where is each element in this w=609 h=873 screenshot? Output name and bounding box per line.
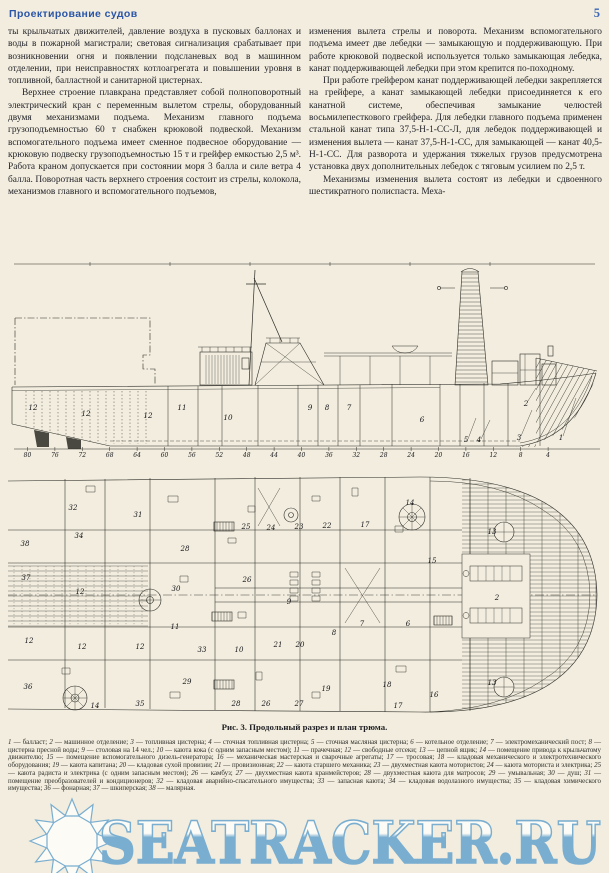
ship-plan-drawing: 3231343828252423221714151337123026911876…: [0, 468, 609, 718]
svg-text:38: 38: [21, 540, 30, 548]
svg-text:16: 16: [430, 691, 439, 699]
svg-text:12: 12: [78, 643, 87, 651]
profile-linework: [12, 262, 609, 453]
svg-text:19: 19: [322, 685, 331, 693]
svg-text:1: 1: [559, 433, 564, 442]
svg-text:72: 72: [78, 452, 86, 458]
watermark: SEATRACKER.RU: [0, 797, 609, 873]
svg-text:80: 80: [24, 452, 32, 458]
page-header: Проектирование судов 5: [9, 6, 600, 21]
svg-text:12: 12: [76, 588, 85, 596]
svg-text:9: 9: [287, 598, 292, 606]
svg-text:2: 2: [523, 399, 529, 408]
svg-text:26: 26: [261, 700, 271, 708]
svg-text:8: 8: [325, 403, 330, 412]
figure-legend: 1 — балласт; 2 — машинное отделение; 3 —…: [8, 739, 601, 793]
svg-text:25: 25: [241, 523, 251, 531]
plan-linework: [8, 476, 602, 714]
svg-text:28: 28: [180, 545, 190, 553]
svg-text:4: 4: [476, 435, 482, 444]
svg-text:6: 6: [406, 620, 411, 628]
svg-text:5: 5: [464, 435, 469, 444]
svg-text:17: 17: [361, 521, 370, 529]
svg-text:40: 40: [297, 452, 306, 458]
svg-text:22: 22: [322, 522, 332, 530]
svg-text:12: 12: [81, 409, 91, 418]
body-paragraph: изменения вылета стрелы и поворота. Меха…: [309, 26, 602, 75]
svg-text:12: 12: [143, 411, 153, 420]
ship-profile-drawing: 1212121110987654321 80767268646056524844…: [0, 258, 609, 458]
body-text: ты крыльчатых движителей, давление возду…: [8, 26, 602, 198]
svg-text:8: 8: [519, 452, 523, 458]
figure-caption: Рис. 3. Продольный разрез и план трюма.: [0, 722, 609, 732]
body-paragraph: При работе грейфером канат поддерживающе…: [309, 75, 602, 173]
svg-text:4: 4: [545, 452, 550, 458]
svg-text:28: 28: [231, 700, 241, 708]
svg-text:20: 20: [295, 641, 305, 649]
svg-text:76: 76: [51, 452, 59, 458]
svg-text:27: 27: [294, 700, 304, 708]
svg-text:10: 10: [235, 646, 244, 654]
svg-text:7: 7: [347, 403, 352, 412]
svg-text:13: 13: [488, 528, 497, 536]
svg-text:28: 28: [379, 452, 388, 458]
svg-text:32: 32: [352, 452, 360, 458]
svg-text:11: 11: [171, 623, 180, 631]
thruster-circle: [63, 686, 87, 710]
svg-text:56: 56: [188, 452, 196, 458]
svg-text:60: 60: [161, 452, 169, 458]
svg-text:37: 37: [22, 574, 31, 582]
svg-text:3: 3: [517, 433, 522, 442]
svg-text:12: 12: [136, 643, 145, 651]
svg-text:48: 48: [242, 452, 251, 458]
running-head: Проектирование судов: [9, 8, 138, 20]
svg-text:20: 20: [434, 452, 443, 458]
svg-text:52: 52: [215, 452, 223, 458]
svg-text:21: 21: [273, 641, 283, 649]
svg-text:14: 14: [406, 499, 415, 507]
svg-text:16: 16: [462, 452, 470, 458]
svg-text:33: 33: [198, 646, 207, 654]
svg-text:64: 64: [133, 452, 141, 458]
svg-text:13: 13: [488, 679, 497, 687]
svg-text:7: 7: [360, 620, 365, 628]
svg-text:24: 24: [266, 524, 276, 532]
svg-text:11: 11: [177, 403, 186, 412]
svg-text:31: 31: [134, 511, 143, 519]
profile-compartment-numbers: 1212121110987654321: [28, 399, 563, 444]
body-paragraph: Механизмы изменения вылета состоят из ле…: [309, 174, 602, 199]
svg-text:12: 12: [25, 637, 34, 645]
svg-text:10: 10: [223, 413, 233, 422]
svg-text:26: 26: [242, 576, 252, 584]
frame-scale-numbers: 80767268646056524844403632282420161284: [24, 452, 551, 458]
svg-text:68: 68: [106, 452, 114, 458]
svg-text:29: 29: [182, 678, 192, 686]
plan-room-numbers: 3231343828252423221714151337123026911876…: [21, 499, 500, 710]
svg-text:23: 23: [294, 523, 304, 531]
svg-text:6: 6: [420, 415, 425, 424]
svg-text:36: 36: [24, 683, 33, 691]
page-number: 5: [594, 6, 600, 21]
svg-text:8: 8: [332, 629, 337, 637]
svg-text:15: 15: [428, 557, 437, 565]
svg-text:2: 2: [494, 594, 500, 602]
svg-text:36: 36: [325, 452, 333, 458]
body-paragraph: Верхнее строение плавкрана представляет …: [8, 87, 301, 198]
svg-text:30: 30: [172, 585, 181, 593]
svg-text:12: 12: [489, 452, 497, 458]
watermark-text: SEATRACKER.RU: [99, 809, 601, 873]
svg-text:17: 17: [394, 702, 403, 710]
svg-text:44: 44: [269, 452, 278, 458]
svg-text:34: 34: [75, 532, 84, 540]
left-column: ты крыльчатых движителей, давление возду…: [8, 26, 301, 198]
svg-text:32: 32: [69, 504, 78, 512]
svg-text:18: 18: [383, 681, 392, 689]
svg-text:9: 9: [308, 403, 313, 412]
svg-text:35: 35: [136, 700, 145, 708]
body-paragraph: ты крыльчатых движителей, давление возду…: [8, 26, 301, 87]
capstan-circle: [139, 589, 161, 611]
svg-text:24: 24: [406, 452, 415, 458]
right-column: изменения вылета стрелы и поворота. Меха…: [309, 26, 602, 198]
svg-text:14: 14: [91, 702, 100, 710]
scanned-book-page: Проектирование судов 5 ты крыльчатых дви…: [0, 0, 609, 873]
svg-text:12: 12: [28, 403, 38, 412]
